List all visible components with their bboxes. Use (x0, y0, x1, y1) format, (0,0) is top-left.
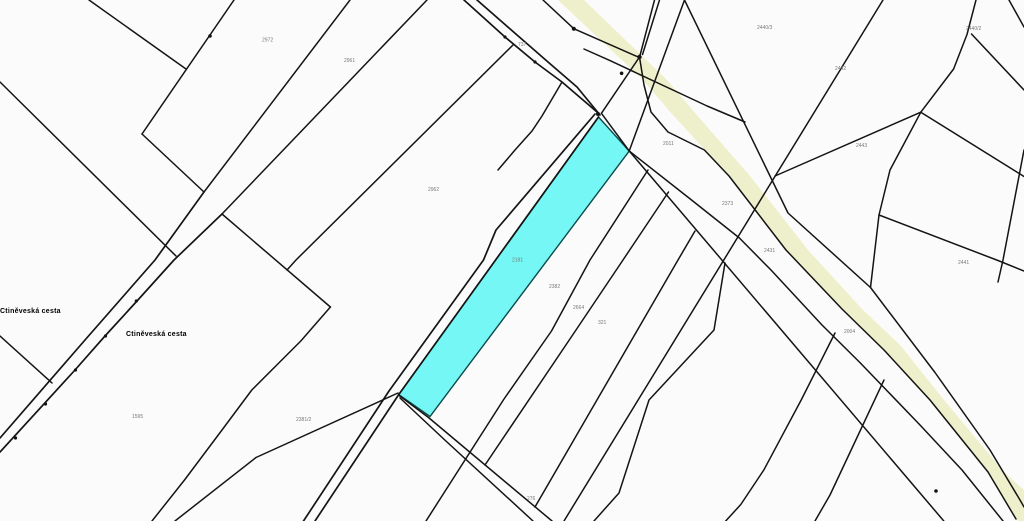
svg-text:2431: 2431 (764, 248, 775, 254)
svg-text:737: 737 (518, 42, 527, 48)
svg-text:276: 276 (527, 496, 536, 502)
svg-text:2373: 2373 (722, 201, 733, 207)
svg-text:2961: 2961 (344, 58, 355, 64)
svg-text:1595: 1595 (132, 414, 143, 420)
svg-text:2011: 2011 (663, 141, 674, 147)
svg-text:2440/3: 2440/3 (757, 25, 773, 31)
svg-text:2962: 2962 (428, 187, 439, 193)
svg-text:321: 321 (598, 320, 607, 326)
svg-text:2004: 2004 (844, 329, 855, 335)
svg-text:2381/2: 2381/2 (296, 417, 312, 423)
svg-text:Ctiněveská cesta: Ctiněveská cesta (0, 308, 61, 315)
svg-text:2440/2: 2440/2 (966, 26, 982, 32)
svg-text:2443: 2443 (856, 143, 867, 149)
svg-text:2664: 2664 (573, 305, 584, 311)
svg-text:2442: 2442 (835, 66, 846, 72)
svg-text:Ctiněveská cesta: Ctiněveská cesta (126, 331, 187, 338)
svg-text:2181: 2181 (512, 258, 523, 264)
svg-text:2441: 2441 (958, 260, 969, 266)
svg-text:2382: 2382 (549, 284, 560, 290)
svg-text:2972: 2972 (262, 38, 273, 44)
